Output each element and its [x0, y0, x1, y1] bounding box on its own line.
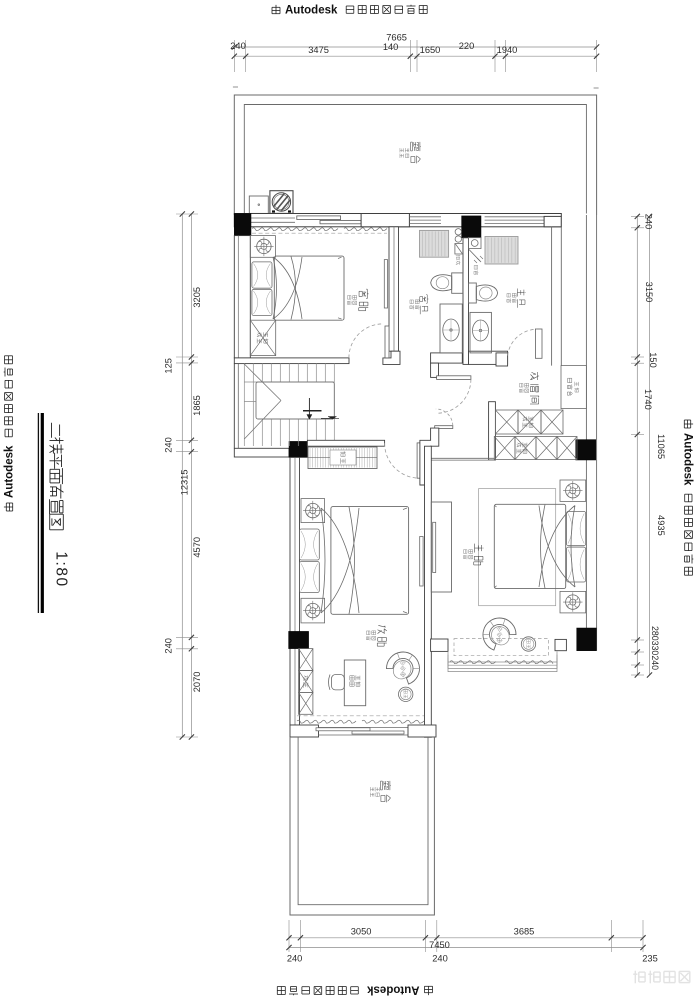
svg-text:1650: 1650 [420, 45, 441, 55]
svg-text:7665: 7665 [386, 33, 407, 43]
svg-text:235: 235 [642, 954, 658, 964]
svg-text:240: 240 [287, 954, 303, 964]
svg-text:140: 140 [383, 42, 399, 52]
svg-text:125: 125 [164, 358, 174, 374]
svg-text:1740: 1740 [643, 389, 653, 410]
svg-text:1865: 1865 [192, 395, 202, 416]
svg-text:3050: 3050 [351, 927, 372, 937]
svg-text:220: 220 [459, 41, 475, 51]
svg-text:Autodesk: Autodesk [367, 983, 420, 995]
svg-text:240: 240 [644, 214, 654, 230]
svg-text:Autodesk: Autodesk [4, 445, 16, 498]
svg-text:240: 240 [164, 638, 174, 654]
svg-text:240: 240 [432, 954, 448, 964]
svg-text:4570: 4570 [192, 537, 202, 558]
svg-text:2070: 2070 [192, 672, 202, 693]
svg-text:1:80: 1:80 [53, 551, 70, 587]
svg-text:Autodesk: Autodesk [285, 5, 338, 17]
svg-text:150: 150 [648, 352, 658, 368]
svg-text:240: 240 [230, 41, 246, 51]
svg-text:12315: 12315 [179, 469, 189, 495]
svg-text:3205: 3205 [192, 287, 202, 308]
svg-text:4935: 4935 [656, 515, 666, 536]
svg-text:3475: 3475 [308, 45, 329, 55]
svg-text:3685: 3685 [514, 927, 535, 937]
svg-text:11065: 11065 [656, 434, 666, 459]
svg-text:280330240: 280330240 [650, 626, 660, 670]
svg-text:3150: 3150 [644, 282, 654, 303]
svg-text:Autodesk: Autodesk [681, 433, 693, 486]
svg-text:240: 240 [164, 437, 174, 453]
svg-text:1940: 1940 [497, 45, 518, 55]
svg-text:7450: 7450 [429, 940, 450, 950]
